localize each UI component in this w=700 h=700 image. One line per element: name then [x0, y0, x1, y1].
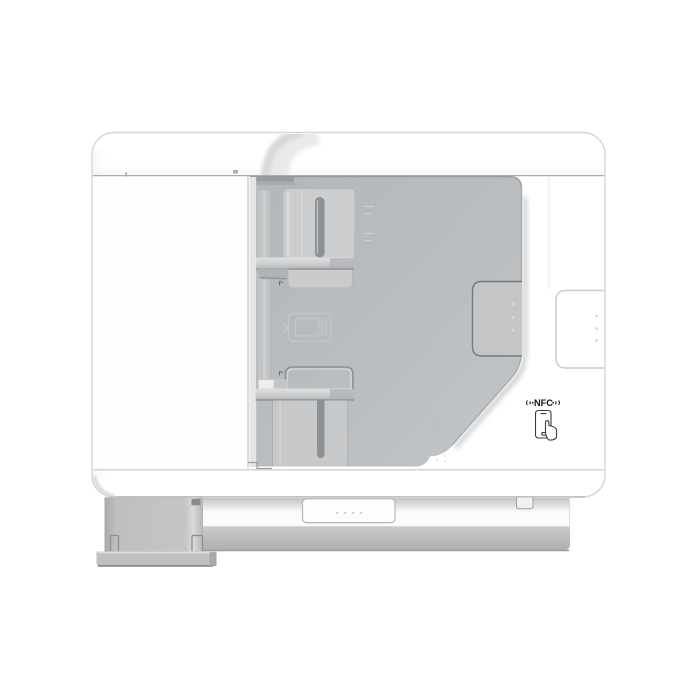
- svg-text:NFC: NFC: [534, 398, 553, 408]
